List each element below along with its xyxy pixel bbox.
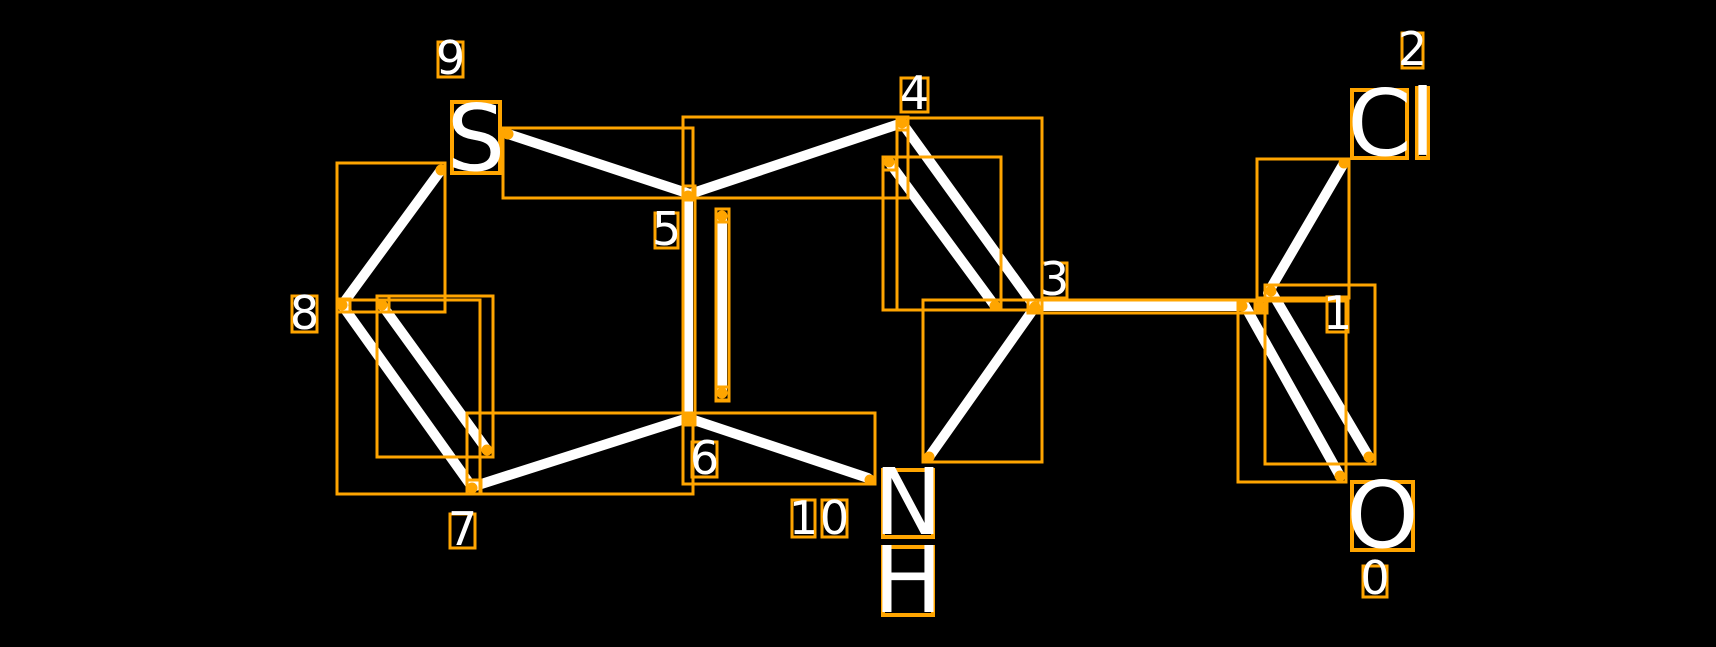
bond-endpoint-dot <box>990 301 1001 312</box>
bond-endpoint-dot <box>436 165 447 176</box>
bond-endpoint-dot <box>884 157 895 168</box>
atom-label-l-of-Cl: l <box>1410 70 1436 177</box>
molecule-canvas: SNHClO954387610210 <box>0 0 1716 647</box>
atom-label-S: S <box>447 85 505 192</box>
bond-endpoint-dot <box>1364 452 1375 463</box>
bond-5-4 <box>690 123 902 194</box>
index-label-5: 5 <box>652 202 681 256</box>
index-label-10-digit-1: 1 <box>789 491 818 545</box>
atom-label-H: H <box>873 527 942 634</box>
bond-3-10 <box>929 307 1035 457</box>
bond-endpoint-dot <box>377 300 388 311</box>
bond-endpoint-dot <box>337 300 348 311</box>
bond-endpoint-dot <box>1255 302 1266 313</box>
index-label-7: 7 <box>448 502 477 556</box>
bond-endpoint-dot <box>1266 286 1277 297</box>
bond-1-2 <box>1268 163 1344 293</box>
bond-endpoint-dot <box>717 388 728 399</box>
bond-6-7 <box>472 418 688 487</box>
index-label-0: 0 <box>1360 551 1389 605</box>
index-label-10-digit-0: 0 <box>820 491 849 545</box>
bond-endpoint-dot <box>683 191 694 202</box>
index-label-3: 3 <box>1040 252 1069 306</box>
index-label-4: 4 <box>900 66 929 120</box>
bond-endpoint-dot <box>1335 471 1346 482</box>
bond-endpoint-dot <box>482 445 493 456</box>
bond-endpoint-dot <box>467 483 478 494</box>
bond-8-9 <box>342 170 441 305</box>
index-label-8: 8 <box>290 286 319 340</box>
bond-endpoint-dot <box>717 211 728 222</box>
index-label-9: 9 <box>436 31 465 85</box>
index-label-1: 1 <box>1323 286 1352 340</box>
bond-endpoint-dot <box>1030 302 1041 313</box>
bond-endpoint-dot <box>683 413 694 424</box>
atom-label-C-of-Cl: C <box>1347 70 1411 177</box>
index-label-6: 6 <box>690 431 719 485</box>
molecule-diagram: SNHClO954387610210 <box>0 0 1716 647</box>
index-label-2: 2 <box>1398 22 1427 76</box>
bond-endpoint-dot <box>1237 301 1248 312</box>
bond-9-5 <box>508 134 690 194</box>
